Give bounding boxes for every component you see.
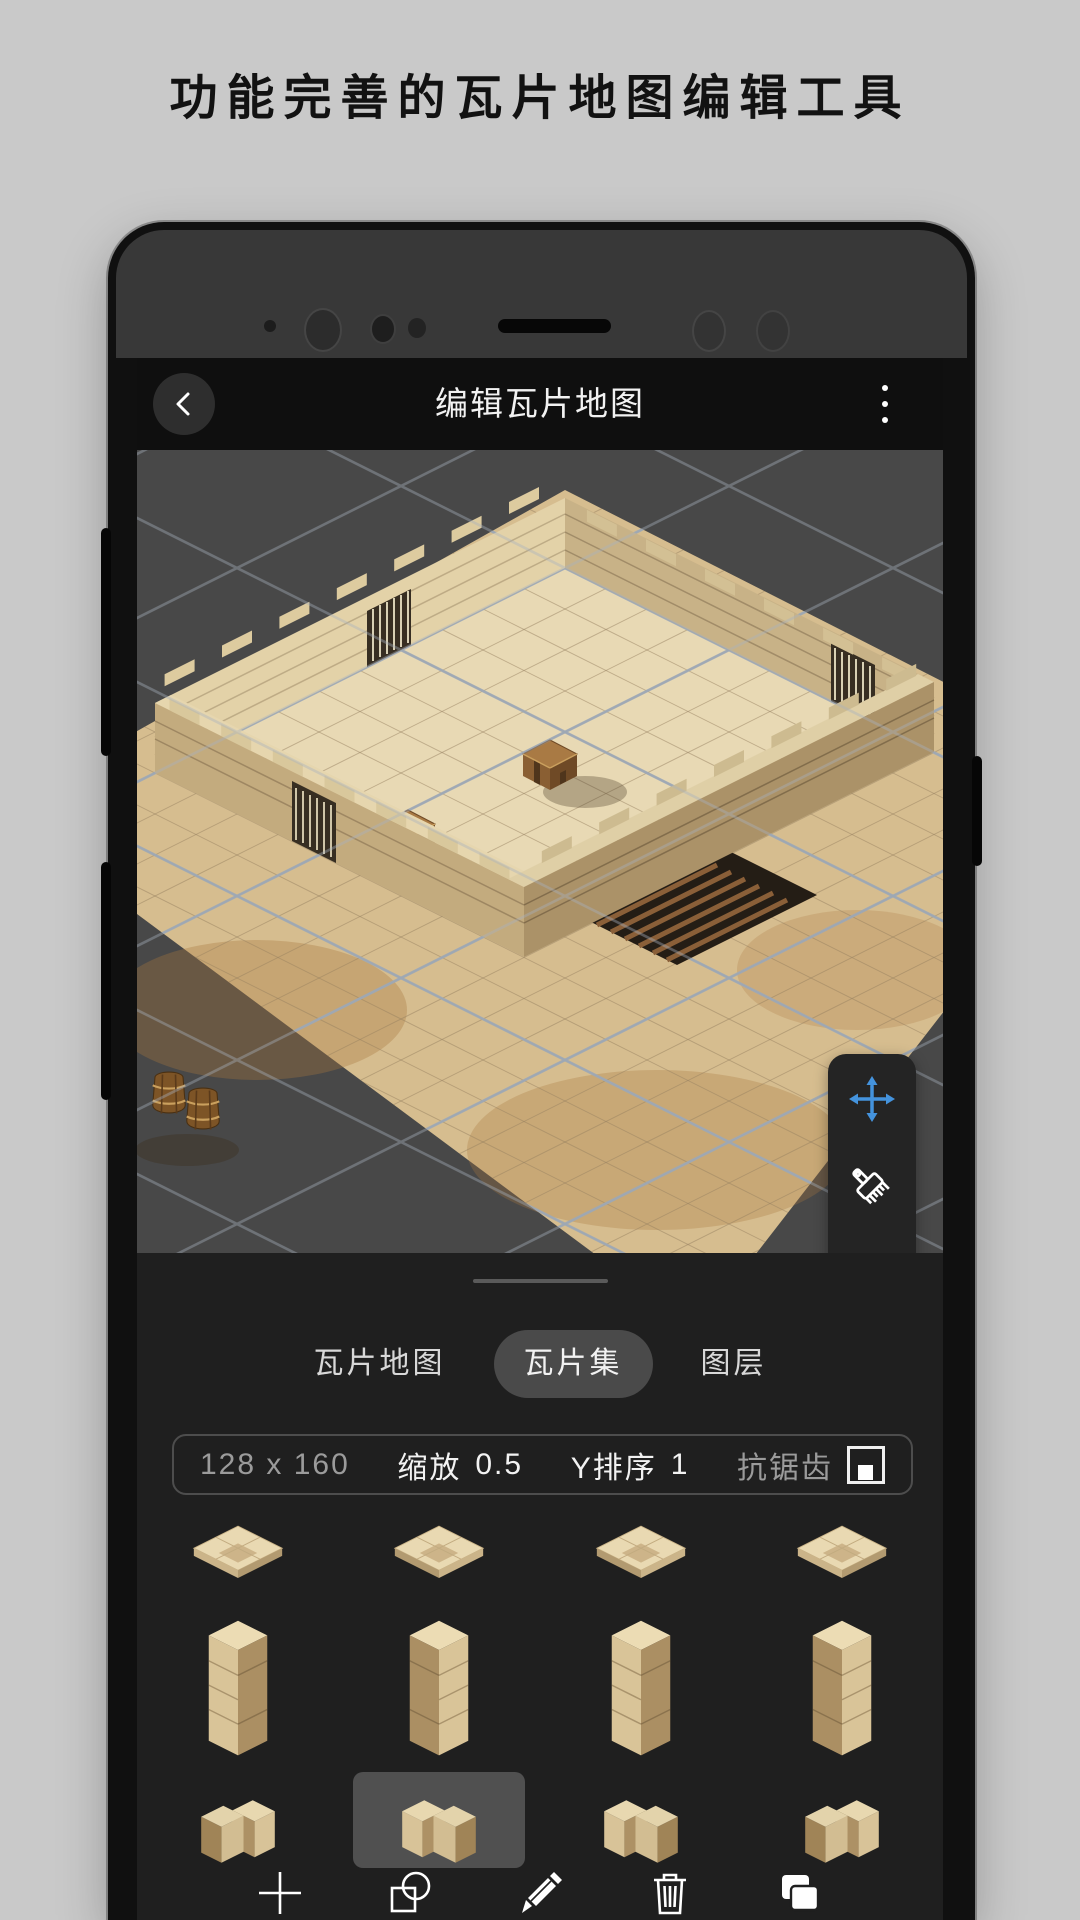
volume-button xyxy=(101,528,111,756)
trash-icon xyxy=(646,1869,694,1917)
eraser-tool-button[interactable] xyxy=(846,1251,898,1253)
ysort-setting[interactable]: Y排序 1 xyxy=(571,1443,690,1487)
front-camera-icon xyxy=(692,310,726,352)
iris-camera-icon xyxy=(304,308,342,352)
move-tool-button[interactable] xyxy=(846,1073,898,1125)
page-title: 功能完善的瓦片地图编辑工具 xyxy=(0,58,1080,128)
proximity-sensor-icon xyxy=(264,320,276,332)
antialias-setting[interactable]: 抗锯齿 xyxy=(737,1443,885,1487)
assistant-button xyxy=(101,862,111,1100)
app-bar: 编辑瓦片地图 xyxy=(137,358,943,450)
sensor-icon xyxy=(408,318,426,338)
corner-tile-1[interactable] xyxy=(137,1780,339,1872)
corner-tile-3[interactable] xyxy=(540,1780,742,1872)
combine-shapes-button[interactable] xyxy=(386,1869,434,1917)
brush-tool-button[interactable] xyxy=(846,1162,898,1214)
floor-tile-2[interactable] xyxy=(339,1505,541,1600)
tileset-toolbar xyxy=(137,1866,943,1920)
pencil-icon xyxy=(516,1869,564,1917)
corner-tile-4[interactable] xyxy=(742,1780,944,1872)
move-cross-icon xyxy=(847,1074,897,1124)
app-bar-title: 编辑瓦片地图 xyxy=(137,358,943,450)
tileset-row-wall xyxy=(137,1600,943,1780)
copy-stack-icon xyxy=(776,1869,824,1917)
tab-tilemap[interactable]: 瓦片地图 xyxy=(302,1330,458,1398)
sheet-drag-handle[interactable] xyxy=(473,1279,608,1283)
scale-setting[interactable]: 缩放 0.5 xyxy=(397,1443,523,1487)
earpiece-speaker xyxy=(498,319,611,333)
tileset-settings-bar: 128 x 160 缩放 0.5 Y排序 1 抗锯齿 xyxy=(172,1434,913,1495)
duplicate-button[interactable] xyxy=(776,1869,824,1917)
wall-tile-4[interactable] xyxy=(742,1600,944,1780)
shape-combine-icon xyxy=(386,1869,434,1917)
tab-layers[interactable]: 图层 xyxy=(689,1330,779,1398)
wall-tile-3[interactable] xyxy=(540,1600,742,1780)
phone-screen: 编辑瓦片地图 xyxy=(137,358,943,1920)
plus-icon xyxy=(256,1869,304,1917)
overflow-menu-button[interactable] xyxy=(863,382,907,426)
scale-value: 0.5 xyxy=(475,1448,523,1482)
wall-tile-1[interactable] xyxy=(137,1600,339,1780)
delete-button[interactable] xyxy=(646,1869,694,1917)
wall-tile-2[interactable] xyxy=(339,1600,541,1780)
tileset-row-floor xyxy=(137,1505,943,1600)
phone-mockup: 编辑瓦片地图 xyxy=(108,222,975,1920)
tilemap-render xyxy=(137,450,943,1253)
floor-tile-3[interactable] xyxy=(540,1505,742,1600)
floor-tile-4[interactable] xyxy=(742,1505,944,1600)
eraser-icon xyxy=(847,1252,897,1253)
tile-size-value: 128 x 160 xyxy=(200,1448,350,1482)
front-camera-icon xyxy=(756,310,790,352)
antialias-checkbox[interactable] xyxy=(847,1446,885,1484)
tab-tileset[interactable]: 瓦片集 xyxy=(494,1330,653,1398)
editor-tabs: 瓦片地图 瓦片集 图层 xyxy=(137,1330,943,1398)
sensor-icon xyxy=(370,314,396,344)
edit-button[interactable] xyxy=(516,1869,564,1917)
power-button xyxy=(972,756,982,866)
floor-tile-1[interactable] xyxy=(137,1505,339,1600)
paint-brush-icon xyxy=(847,1163,897,1213)
add-button[interactable] xyxy=(256,1869,304,1917)
ysort-value: 1 xyxy=(671,1448,690,1482)
phone-top-bezel xyxy=(116,230,967,358)
map-canvas[interactable]: 行 8，列 9 xyxy=(137,450,943,1253)
corner-tile-2-selected[interactable] xyxy=(339,1780,541,1872)
tileset-row-corner xyxy=(137,1780,943,1870)
canvas-tool-panel xyxy=(828,1054,916,1253)
